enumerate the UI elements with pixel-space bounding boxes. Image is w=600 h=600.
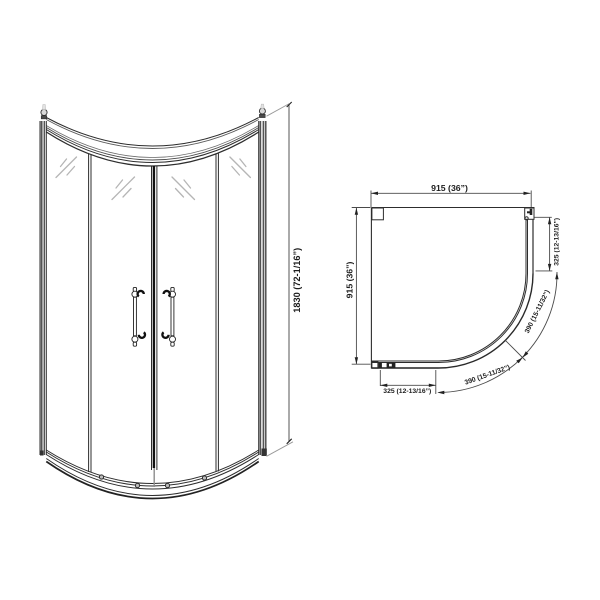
svg-text:325 (12-13/16”): 325 (12-13/16”) bbox=[554, 218, 561, 266]
svg-text:1830 (72-1/16”): 1830 (72-1/16”) bbox=[292, 248, 302, 313]
svg-text:915 (36”): 915 (36”) bbox=[344, 262, 354, 299]
svg-text:915 (36”): 915 (36”) bbox=[431, 183, 468, 193]
svg-text:325 (12-13/16”): 325 (12-13/16”) bbox=[383, 388, 431, 395]
